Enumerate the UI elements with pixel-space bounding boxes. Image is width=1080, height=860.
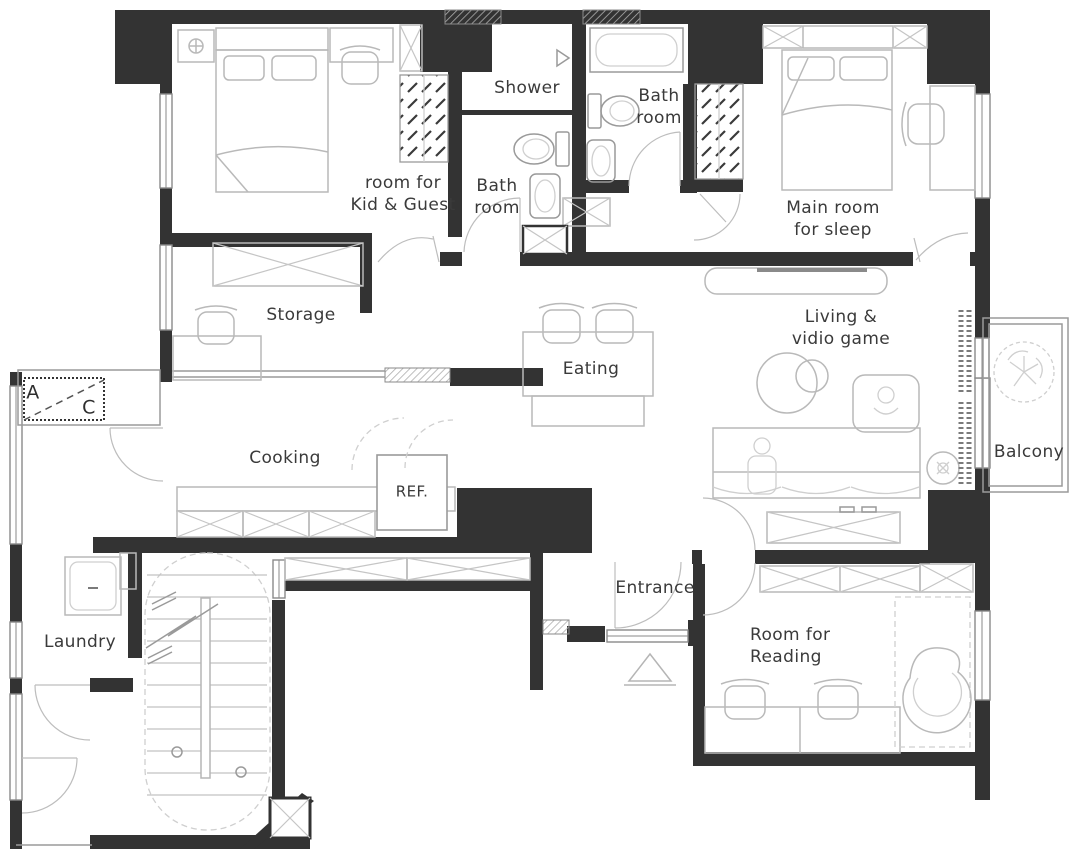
kid-guest-room-furniture (178, 25, 448, 262)
window-icon (10, 386, 22, 544)
window-icon (160, 245, 172, 330)
chair-icon (539, 304, 584, 344)
section-marker-c: C (82, 396, 96, 421)
room-label-main-bedroom: Main room for sleep (786, 197, 880, 241)
closet-x-cabinet-icon (920, 564, 973, 592)
pillow-icon (272, 56, 316, 80)
desk-icon (173, 336, 261, 380)
curtain-icon (961, 310, 969, 487)
bathtub-icon (590, 28, 683, 72)
lounge-chair-icon (903, 648, 971, 733)
door-swing-icon (22, 758, 77, 813)
room-label-laundry: Laundry (44, 631, 116, 653)
sofa-icon (713, 428, 920, 498)
walls (10, 10, 990, 849)
window-hatch (445, 10, 501, 24)
window-icon (160, 94, 172, 188)
sink-icon (587, 140, 615, 182)
room-label-bath-inner: Bath room (474, 175, 520, 219)
chair-icon (340, 46, 380, 84)
door-swing-icon (110, 428, 163, 481)
window-icon (273, 560, 285, 598)
closet-x-cabinet-icon (177, 511, 375, 537)
entry-step-icon (543, 620, 569, 634)
closet-x-cabinet-icon (760, 566, 920, 592)
window-hatch (385, 368, 450, 382)
room-label-kid-guest: room for Kid & Guest (350, 172, 455, 216)
closet-x-cabinet-icon (213, 243, 363, 286)
shelf-icon (330, 28, 393, 62)
shaft-icon (523, 226, 567, 254)
floor-plan-drawing (0, 0, 1080, 860)
nightstand-lamp-icon (178, 30, 214, 62)
room-label-shower: Shower (494, 77, 560, 99)
person-icon (754, 438, 770, 454)
plant-icon (994, 342, 1054, 402)
door-swing-icon (914, 233, 968, 262)
door-swing-icon (35, 685, 90, 740)
room-label-eating: Eating (563, 358, 620, 380)
pillow-icon (840, 57, 887, 80)
bench-icon (532, 396, 644, 426)
room-label-storage: Storage (266, 304, 335, 326)
window-icon (10, 694, 22, 800)
side-table-icon (796, 360, 828, 392)
wardrobe-icon (695, 84, 743, 179)
balcony-structure (983, 318, 1068, 492)
double-bed-icon (782, 50, 892, 190)
closet-x-cabinet-icon (763, 26, 927, 48)
cooking-furniture (110, 418, 455, 537)
toilet-icon (514, 132, 569, 166)
floor-lamp-icon (927, 452, 959, 484)
entry-arrow-icon (624, 654, 676, 685)
chair-icon (814, 680, 862, 720)
hallway-cabinets (285, 558, 530, 580)
chair-icon (592, 304, 637, 344)
desk-icon (930, 86, 975, 190)
entry-door-icon (607, 630, 688, 642)
closet-x-cabinet-icon (270, 798, 310, 838)
window-icon (975, 611, 990, 700)
door-swing-icon (694, 194, 740, 240)
balcony-door-icon (975, 338, 989, 378)
shower-door-icon (557, 50, 569, 66)
room-label-bath-main: Bath room (636, 85, 682, 129)
media-cabinet-icon (767, 507, 900, 543)
window-icon (10, 622, 22, 678)
closet-x-cabinet-icon (400, 25, 422, 71)
desk-icon (705, 707, 900, 753)
door-swing-icon (378, 236, 439, 262)
washing-machine-icon (65, 557, 121, 615)
pillow-icon (224, 56, 264, 80)
section-marker-a: A (26, 381, 39, 406)
refrigerator-label: REF. (396, 482, 429, 502)
room-label-balcony: Balcony (994, 441, 1064, 463)
chair-icon (721, 680, 769, 720)
door-swing-icon (703, 498, 755, 615)
room-label-reading: Room for Reading (750, 624, 830, 668)
window-icon (975, 94, 990, 198)
window-hatch (583, 10, 640, 24)
double-bed-icon (216, 28, 328, 192)
room-label-cooking: Cooking (249, 447, 321, 469)
door-swing-icon (629, 132, 680, 186)
floor-plan: room for Kid & Guest Shower Bath room Ba… (0, 0, 1080, 860)
chair-icon (902, 102, 944, 146)
pillow-icon (788, 57, 834, 80)
shaft-icon (563, 198, 610, 226)
tv-console-icon (705, 268, 887, 294)
room-label-entrance: Entrance (615, 577, 694, 599)
toilet-icon (588, 94, 639, 128)
gaming-chair-icon (853, 375, 919, 432)
side-table-icon (757, 353, 817, 413)
wardrobe-icon (400, 75, 448, 162)
sink-icon (530, 174, 560, 218)
stair-stringer (201, 598, 210, 778)
room-label-living: Living & vidio game (792, 306, 890, 350)
chair-icon (195, 306, 237, 344)
